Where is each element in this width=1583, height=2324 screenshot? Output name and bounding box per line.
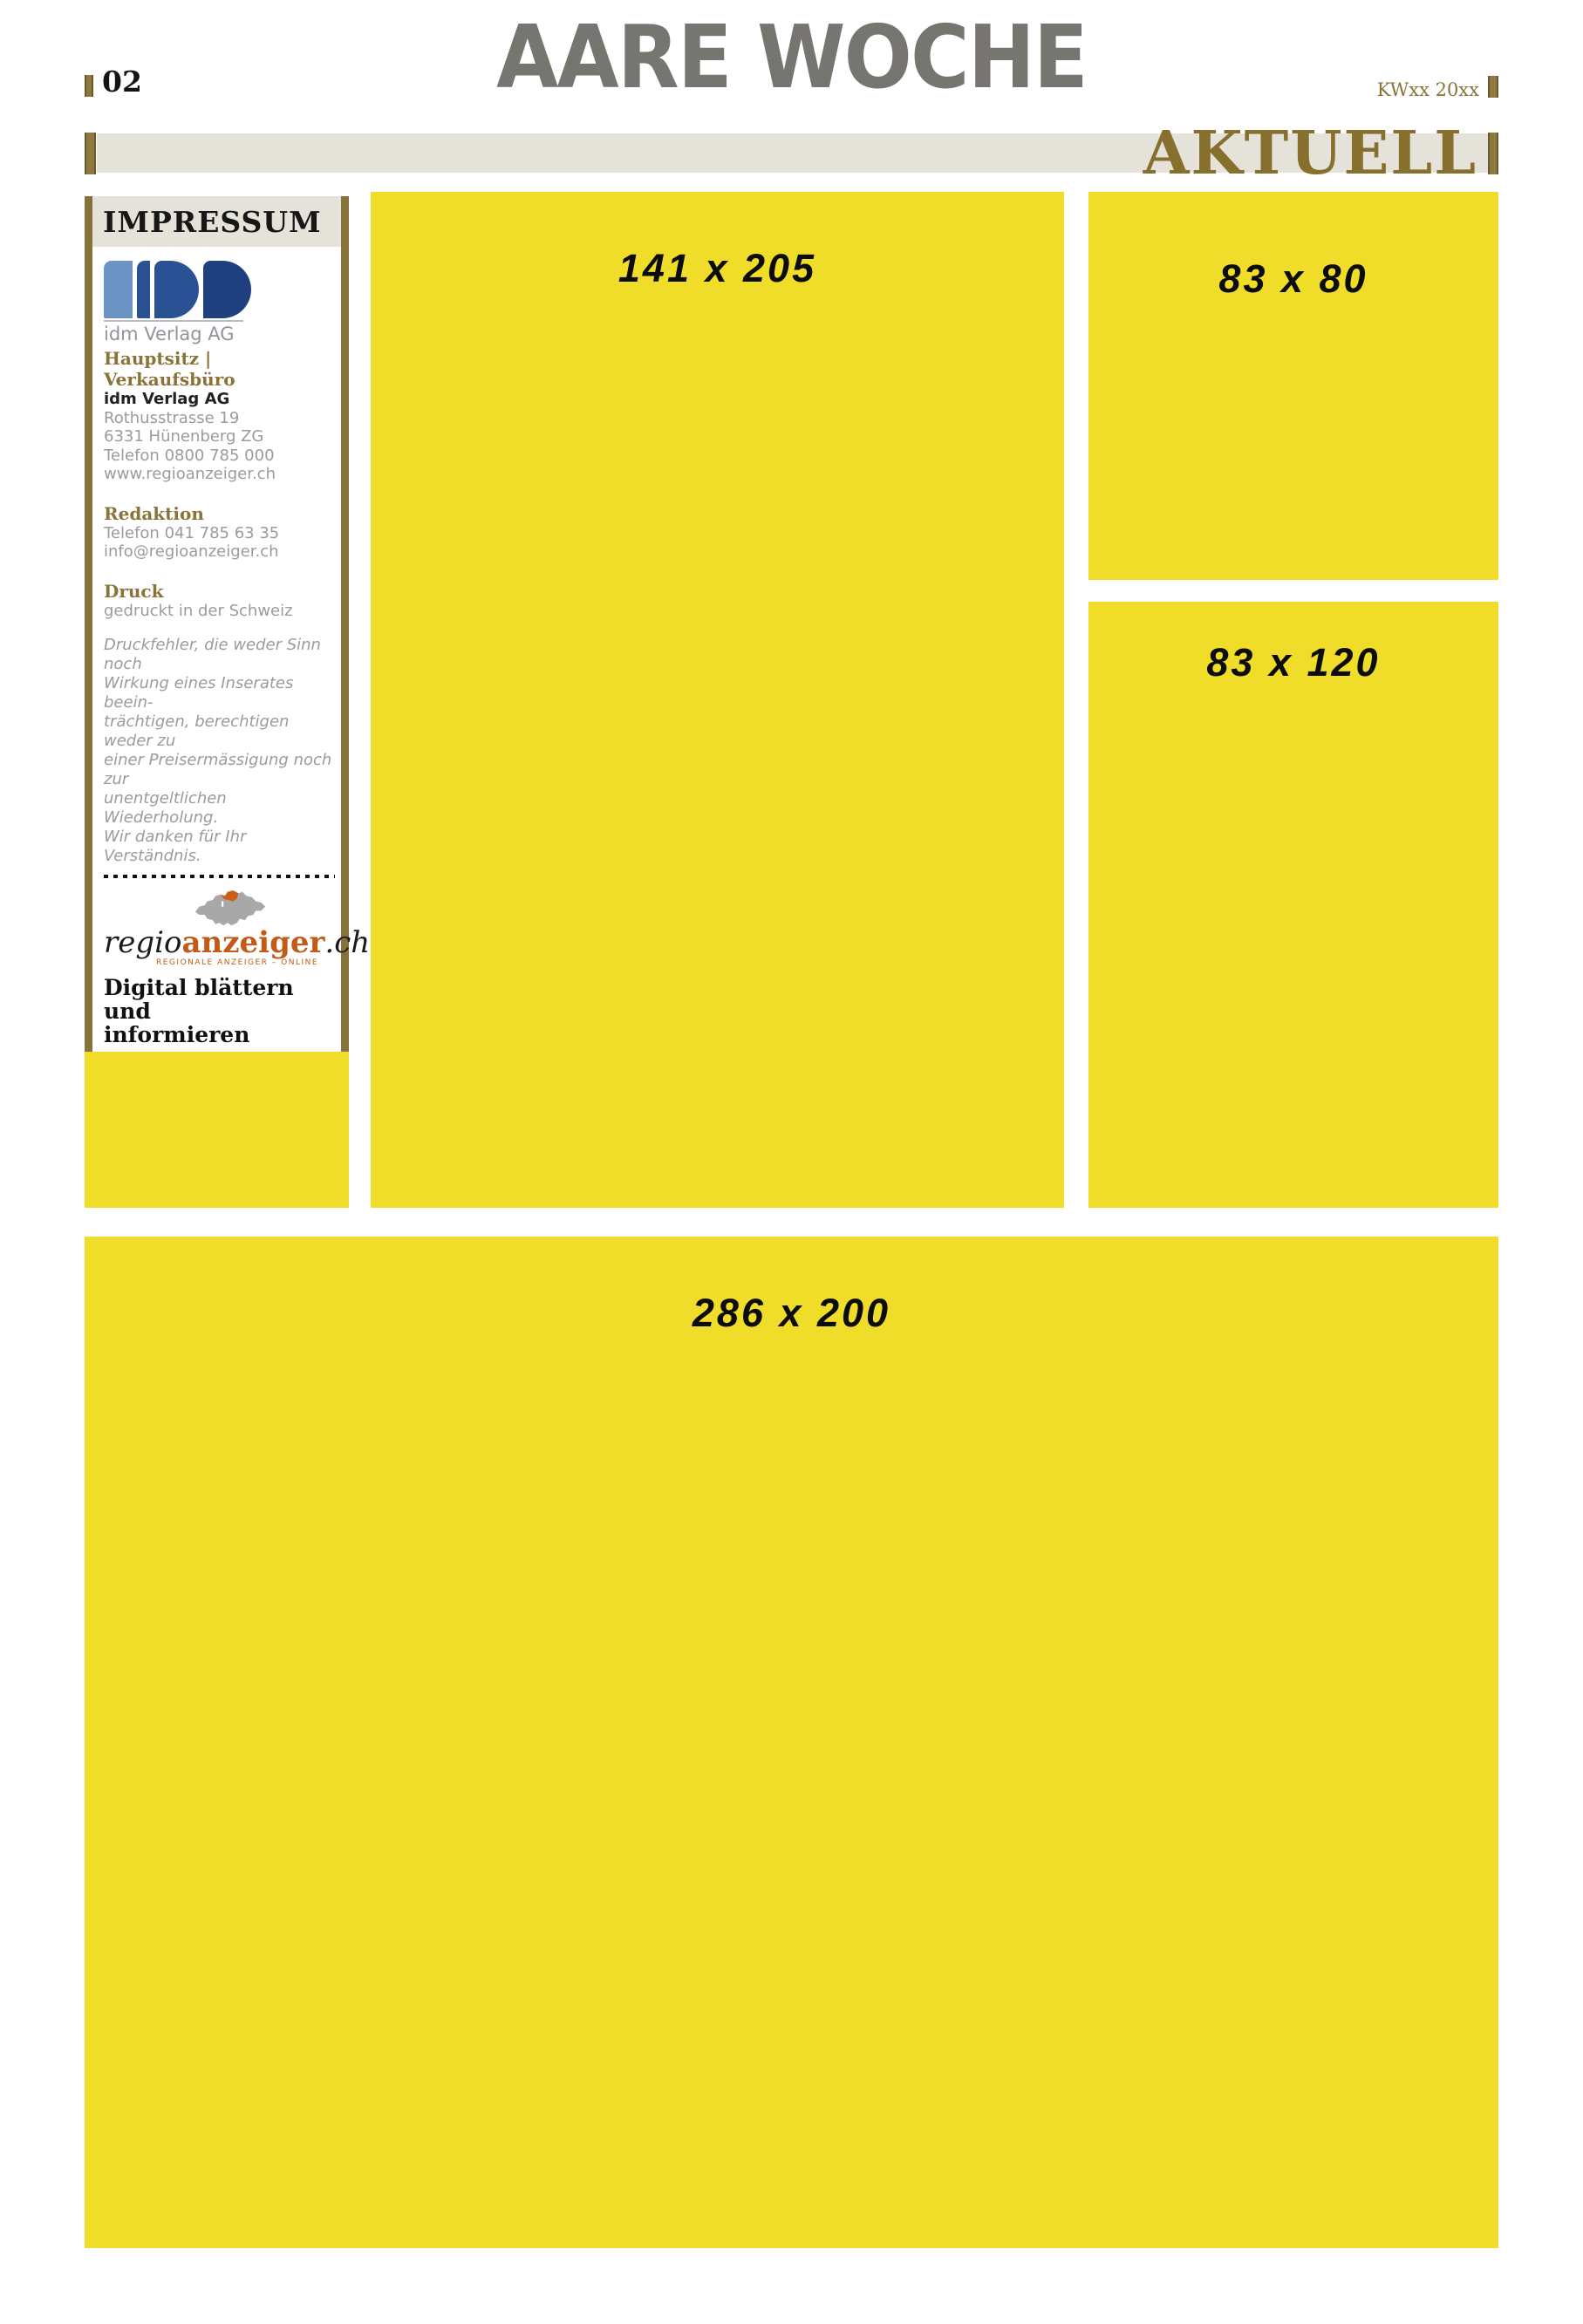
address-line: Rothusstrasse 19 xyxy=(104,409,332,428)
wordmark-tld: .ch xyxy=(324,925,370,960)
section-band: AKTUELL xyxy=(97,133,1488,173)
disclaimer-line: Druckfehler, die weder Sinn noch xyxy=(104,636,332,674)
week-bar xyxy=(1488,76,1498,98)
week-label: KWxx 20xx xyxy=(1377,80,1479,99)
promo-line: Digital blättern und xyxy=(104,976,332,1023)
ad-slot-286x200: 286 x 200 xyxy=(85,1237,1498,2248)
idm-verlag-logo xyxy=(104,261,332,318)
idm-logo-shape xyxy=(104,261,133,318)
phone-line: Telefon 0800 785 000 xyxy=(104,446,332,466)
idm-logo-shape xyxy=(154,261,199,318)
ad-slot-83x80: 83 x 80 xyxy=(1088,192,1498,580)
regioanzeiger-wordmark[interactable]: regioanzeiger.ch xyxy=(104,927,332,958)
page-number: 02 xyxy=(102,66,142,98)
ad-size-label: 83 x 80 xyxy=(1088,192,1498,302)
idm-logo-shape xyxy=(137,261,150,318)
promo-line: informieren xyxy=(104,1023,332,1046)
disclaimer-line: unentgeltlichen Wiederholung. xyxy=(104,789,332,828)
disclaimer-line: Wir danken für Ihr Verständnis. xyxy=(104,828,332,866)
disclaimer-line: trächtigen, berechtigen weder zu xyxy=(104,712,332,751)
ad-slot-83x120: 83 x 120 xyxy=(1088,602,1498,1208)
section-band-right-bar xyxy=(1488,133,1498,174)
impressum-title: IMPRESSUM xyxy=(103,205,322,239)
phone-line: Telefon 041 785 63 35 xyxy=(104,524,332,543)
disclaimer-line: einer Preisermässigung noch zur xyxy=(104,751,332,789)
publisher-name: idm Verlag AG xyxy=(104,390,332,409)
ad-slot-141x205: 141 x 205 xyxy=(371,192,1064,1208)
idm-logo-caption: idm Verlag AG xyxy=(104,320,243,344)
ad-size-label: 141 x 205 xyxy=(371,192,1064,291)
promo-text: Digital blättern und informieren xyxy=(104,976,332,1046)
wordmark-anzeiger: anzeiger xyxy=(181,925,324,960)
impressum-section-heading: Druck xyxy=(104,581,332,602)
impressum-header: IMPRESSUM xyxy=(92,196,341,247)
section-title: AKTUELL xyxy=(1143,126,1477,181)
ad-size-label: 83 x 120 xyxy=(1088,602,1498,685)
dotted-divider xyxy=(104,875,335,878)
section-band-left-bar xyxy=(85,133,96,174)
disclaimer-text: Druckfehler, die weder Sinn noch Wirkung… xyxy=(104,636,332,866)
address-line: 6331 Hünenberg ZG xyxy=(104,427,332,446)
impressum-body: idm Verlag AG Hauptsitz | Verkaufsbüro i… xyxy=(92,261,341,1046)
ad-size-label: 286 x 200 xyxy=(85,1237,1498,1336)
website-link[interactable]: www.regioanzeiger.ch xyxy=(104,465,332,484)
email-link[interactable]: info@regioanzeiger.ch xyxy=(104,542,332,562)
impressum-section-heading: Hauptsitz | Verkaufsbüro xyxy=(104,348,332,390)
impressum-box: IMPRESSUM idm Verlag AG Hauptsitz | Verk… xyxy=(85,196,349,1052)
print-info-line: gedruckt in der Schweiz xyxy=(104,602,332,621)
disclaimer-line: Wirkung eines Inserates beein- xyxy=(104,674,332,712)
wordmark-regio: regio xyxy=(104,925,181,960)
idm-logo-shape xyxy=(203,261,251,318)
impressum-section-heading: Redaktion xyxy=(104,503,332,524)
regioanzeiger-tagline: REGIONALE ANZEIGER – ONLINE xyxy=(156,958,332,967)
masthead-title: AARE WOCHE xyxy=(64,21,1520,94)
newspaper-page: AARE WOCHE 02 KWxx 20xx AKTUELL 141 x 20… xyxy=(0,0,1583,2324)
page-number-bar xyxy=(85,75,93,97)
